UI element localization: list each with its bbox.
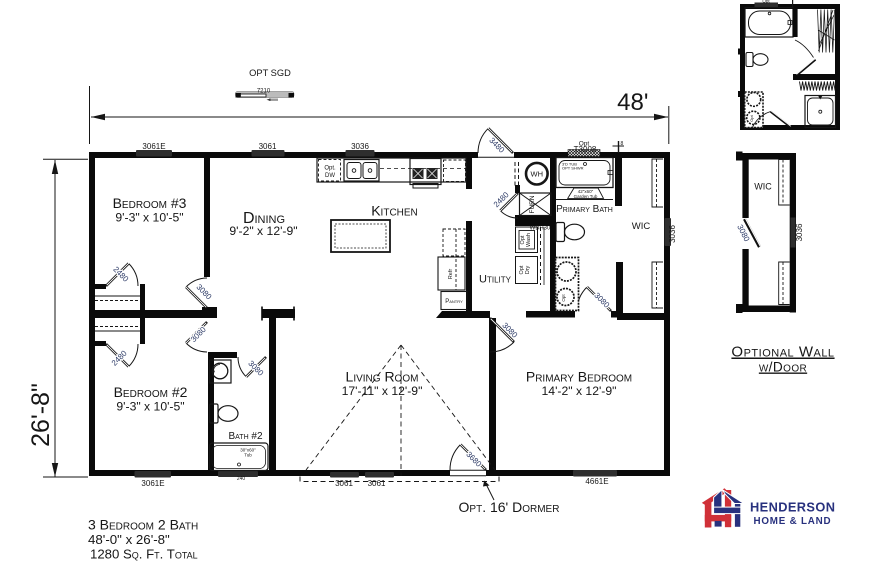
svg-text:3036: 3036 — [795, 223, 804, 241]
svg-text:48': 48' — [617, 89, 648, 116]
svg-text:FURN: FURN — [529, 195, 536, 213]
svg-text:1280 Sq. Ft. Total: 1280 Sq. Ft. Total — [90, 547, 198, 562]
svg-text:9'-3" x 10'-5": 9'-3" x 10'-5" — [115, 211, 183, 225]
svg-text:Primary Bedroom: Primary Bedroom — [526, 369, 632, 385]
svg-text:3061: 3061 — [259, 142, 277, 151]
svg-text:9'-2" x 12'-9": 9'-2" x 12'-9" — [229, 224, 297, 238]
svg-text:OPT SHWR: OPT SHWR — [562, 166, 584, 171]
svg-text:WH: WH — [531, 170, 544, 179]
svg-text:Kitchen: Kitchen — [371, 203, 418, 219]
svg-text:3061E: 3061E — [142, 142, 165, 151]
svg-text:3061: 3061 — [335, 479, 353, 488]
svg-text:T3008: T3008 — [574, 145, 597, 154]
svg-text:Bedroom #2: Bedroom #2 — [114, 384, 188, 400]
svg-text:3036: 3036 — [351, 142, 369, 151]
svg-text:3061E: 3061E — [141, 479, 164, 488]
svg-text:Living Room: Living Room — [346, 369, 419, 385]
svg-text:8: 8 — [621, 141, 624, 147]
svg-text:Opt.: Opt. — [324, 166, 336, 172]
svg-text:Utility: Utility — [479, 274, 512, 286]
svg-text:Opt: Opt — [762, 0, 770, 4]
svg-text:4661E: 4661E — [585, 477, 608, 486]
svg-text:Dry: Dry — [525, 265, 531, 274]
svg-text:Bath #2: Bath #2 — [228, 431, 262, 442]
svg-text:WIC: WIC — [632, 221, 651, 232]
svg-text:w/Door: w/Door — [759, 360, 807, 375]
svg-text:OPT SGD: OPT SGD — [249, 68, 291, 78]
svg-text:Opt: Opt — [561, 294, 566, 302]
svg-text:3036: 3036 — [668, 225, 677, 243]
svg-text:3 Bedroom 2 Bath: 3 Bedroom 2 Bath — [88, 517, 198, 533]
svg-text:Refr: Refr — [448, 269, 454, 280]
svg-text:Tub: Tub — [244, 453, 252, 458]
svg-text:3061: 3061 — [368, 479, 386, 488]
svg-text:Primary Bath: Primary Bath — [556, 204, 613, 215]
svg-text:HOME & LAND: HOME & LAND — [754, 516, 832, 527]
svg-text:Wash: Wash — [526, 233, 532, 247]
svg-text:HENDERSON: HENDERSON — [750, 500, 835, 515]
svg-text:26'-8": 26'-8" — [27, 383, 55, 447]
svg-text:48'-0" x 26'-8": 48'-0" x 26'-8" — [88, 532, 170, 547]
svg-text:WIC: WIC — [754, 182, 772, 192]
svg-text:Opt. 16' Dormer: Opt. 16' Dormer — [459, 499, 560, 515]
svg-text:Opt: Opt — [749, 114, 754, 121]
svg-text:Optional Wall: Optional Wall — [731, 344, 834, 361]
svg-text:14'-2" x 12'-9": 14'-2" x 12'-9" — [542, 384, 617, 398]
svg-text:9'-3" x 10'-5": 9'-3" x 10'-5" — [116, 400, 184, 414]
svg-text:Pantry: Pantry — [445, 299, 463, 305]
svg-text:DW: DW — [325, 173, 335, 179]
svg-text:240: 240 — [237, 476, 246, 482]
svg-text:Garden Tub: Garden Tub — [574, 194, 598, 199]
svg-text:7210: 7210 — [257, 89, 271, 95]
svg-text:17'-11" x 12'-9": 17'-11" x 12'-9" — [342, 384, 423, 398]
svg-text:Bedroom #3: Bedroom #3 — [113, 195, 187, 211]
